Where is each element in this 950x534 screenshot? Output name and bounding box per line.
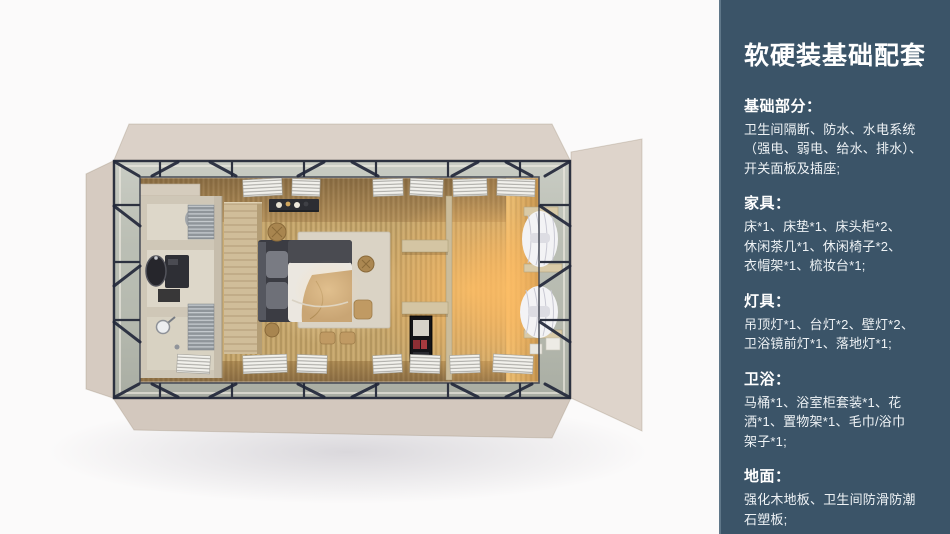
section-heading-floor: 地面：	[744, 465, 936, 486]
floorplan-svg	[0, 0, 719, 534]
divider-wall	[446, 196, 452, 380]
coat-rack	[269, 199, 319, 212]
spec-section-furniture: 家具： 床*1、床垫*1、床头柜*2、 休闲茶几*1、休闲椅子*2、 衣帽架*1…	[744, 192, 936, 276]
section-heading-bath: 卫浴：	[744, 368, 936, 389]
section-heading-basics: 基础部分：	[744, 95, 936, 116]
pouf	[354, 300, 372, 319]
curtain-upper	[522, 211, 558, 267]
shell-wall-right	[571, 139, 642, 431]
bathroom-top-plank	[140, 184, 200, 196]
slide: 软硬装基础配套 基础部分： 卫生间隔断、防水、水电系统 （强电、弱电、给水、排水…	[0, 0, 950, 534]
bathroom-right-wall	[214, 196, 222, 378]
section-body-lighting: 吊顶灯*1、台灯*2、壁灯*2、 卫浴镜前灯*1、落地灯*1;	[744, 315, 936, 354]
section-body-bath: 马桶*1、浴室柜套装*1、花 洒*1、置物架*1、毛巾/浴巾 架子*1;	[744, 393, 936, 452]
switch-box-1	[546, 338, 560, 350]
stool-1	[320, 332, 335, 344]
spec-section-floor: 地面： 强化木地板、卫生间防滑防潮 石塑板;	[744, 465, 936, 529]
panel-title: 软硬装基础配套	[744, 42, 936, 71]
wall-shelf-upper	[402, 240, 448, 252]
floor-drain	[175, 345, 180, 350]
spec-section-basics: 基础部分： 卫生间隔断、防水、水电系统 （强电、弱电、给水、排水）、 开关面板及…	[744, 95, 936, 179]
shell-wall-top	[114, 124, 570, 160]
pillow-1	[266, 251, 288, 278]
floorplan-render	[0, 0, 719, 534]
wall-shelf-lower	[402, 302, 448, 314]
headboard-panel	[224, 202, 262, 354]
section-body-furniture: 床*1、床垫*1、床头柜*2、 休闲茶几*1、休闲椅子*2、 衣帽架*1、梳妆台…	[744, 217, 936, 276]
section-heading-furniture: 家具：	[744, 192, 936, 213]
spec-panel: 软硬装基础配套 基础部分： 卫生间隔断、防水、水电系统 （强电、弱电、给水、排水…	[719, 0, 950, 534]
spec-section-lighting: 灯具： 吊顶灯*1、台灯*2、壁灯*2、 卫浴镜前灯*1、落地灯*1;	[744, 290, 936, 354]
folded-blanket	[288, 240, 352, 263]
shell-wall-left	[86, 161, 113, 398]
stool-2	[340, 332, 355, 344]
towel-rack-lower	[188, 304, 214, 350]
switch-box-2	[530, 344, 542, 354]
pillow-2	[266, 282, 288, 309]
towel-rack-upper	[188, 205, 214, 239]
section-body-floor: 强化木地板、卫生间防滑防潮 石塑板;	[744, 490, 936, 529]
section-heading-lighting: 灯具：	[744, 290, 936, 311]
spec-section-bath: 卫浴： 马桶*1、浴室柜套装*1、花 洒*1、置物架*1、毛巾/浴巾 架子*1;	[744, 368, 936, 452]
bathroom	[140, 184, 222, 378]
section-body-basics: 卫生间隔断、防水、水电系统 （强电、弱电、给水、排水）、 开关面板及插座;	[744, 120, 936, 179]
